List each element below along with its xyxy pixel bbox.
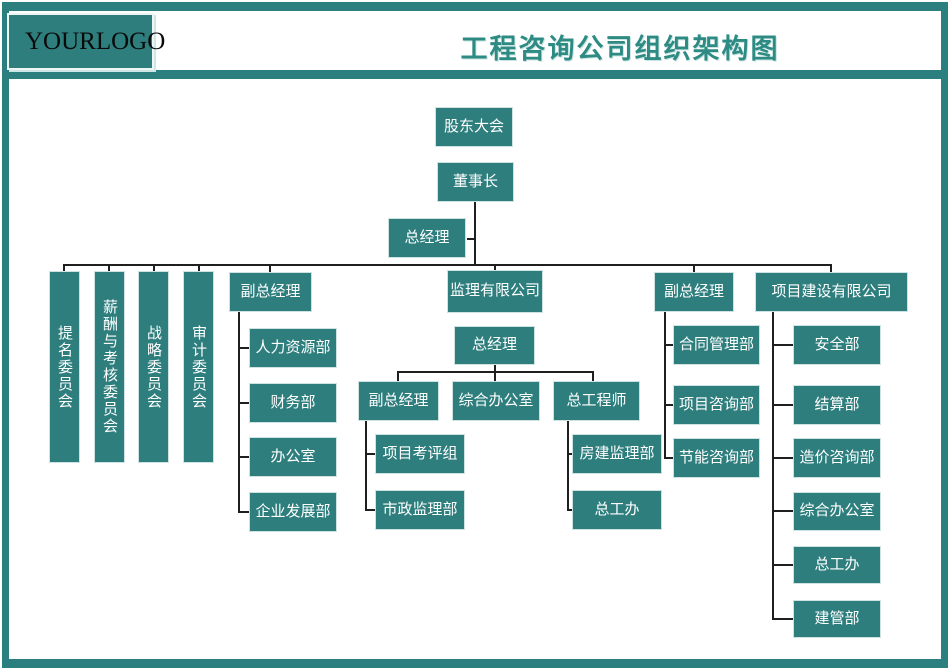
connector-line	[772, 510, 794, 512]
org-node-project-consulting-dept: 项目咨询部	[673, 385, 760, 425]
org-node-dgm2: 副总经理	[654, 272, 734, 312]
org-node-chief-eng-office-pc: 总工办	[793, 546, 881, 584]
org-node-project-construction-co: 项目建设有限公司	[755, 272, 908, 312]
org-node-sup-gm: 总经理	[454, 326, 535, 365]
org-node-housing-supervision-dept: 房建监理部	[572, 434, 662, 474]
org-node-committee-compensation: 薪酬与考核委员会	[94, 271, 125, 463]
connector-line	[772, 564, 794, 566]
org-node-enterprise-dev-dept: 企业发展部	[249, 492, 337, 532]
org-node-safety-dept: 安全部	[793, 325, 881, 365]
org-node-construction-mgmt-dept: 建管部	[793, 600, 881, 638]
connector-line	[467, 238, 476, 240]
org-node-committee-strategy: 战略委员会	[138, 271, 169, 463]
org-node-committee-nomination: 提名委员会	[49, 271, 80, 463]
header-divider-bar	[2, 70, 948, 79]
page: YOUR LOGO 工程咨询公司组织架构图 股东大会 董事长 总经理 提名委员会…	[0, 0, 950, 672]
org-node-chairman: 董事长	[437, 162, 514, 202]
connector-line	[63, 264, 832, 266]
frame-bottom-bar	[2, 659, 948, 668]
connector-line	[397, 371, 594, 373]
connector-line	[772, 618, 794, 620]
org-node-sup-admin-office: 综合办公室	[452, 381, 540, 421]
org-node-admin-office-pc: 综合办公室	[793, 492, 881, 531]
org-node-project-eval-group: 项目考评组	[375, 434, 465, 474]
org-node-energy-consulting-dept: 节能咨询部	[673, 438, 760, 478]
connector-line	[494, 365, 496, 382]
connector-line	[238, 312, 240, 513]
org-node-contract-mgmt-dept: 合同管理部	[673, 325, 760, 365]
page-title: 工程咨询公司组织架构图	[400, 27, 840, 66]
connector-line	[664, 312, 666, 459]
org-node-settlement-dept: 结算部	[793, 385, 881, 425]
org-node-finance-dept: 财务部	[249, 383, 337, 423]
org-node-supervision-co: 监理有限公司	[447, 270, 543, 313]
org-node-chief-engineer: 总工程师	[553, 381, 640, 421]
connector-line	[772, 457, 794, 459]
org-node-hr-dept: 人力资源部	[249, 328, 337, 368]
org-node-municipal-supervision-dept: 市政监理部	[375, 490, 465, 530]
org-node-cost-consulting-dept: 造价咨询部	[793, 438, 881, 478]
org-node-committee-audit: 审计委员会	[183, 271, 214, 463]
logo-box: YOUR LOGO	[7, 13, 154, 70]
connector-line	[772, 404, 794, 406]
connector-line	[772, 344, 794, 346]
frame-left-bar	[2, 2, 9, 668]
frame-right-bar	[941, 2, 948, 668]
frame-top-bar	[2, 2, 948, 11]
org-node-gm: 总经理	[388, 218, 466, 258]
connector-line	[567, 421, 569, 511]
org-node-sup-dgm: 副总经理	[358, 381, 439, 421]
org-node-dgm1: 副总经理	[229, 272, 312, 312]
logo-text-your: YOUR	[25, 28, 96, 56]
connector-line	[365, 421, 367, 511]
org-node-chief-eng-office-sup: 总工办	[572, 490, 662, 530]
logo-text-logo: LOGO	[96, 28, 165, 56]
connector-line	[474, 202, 476, 266]
org-node-shareholders: 股东大会	[435, 107, 513, 147]
connector-line	[772, 312, 774, 620]
org-node-office: 办公室	[249, 437, 337, 477]
